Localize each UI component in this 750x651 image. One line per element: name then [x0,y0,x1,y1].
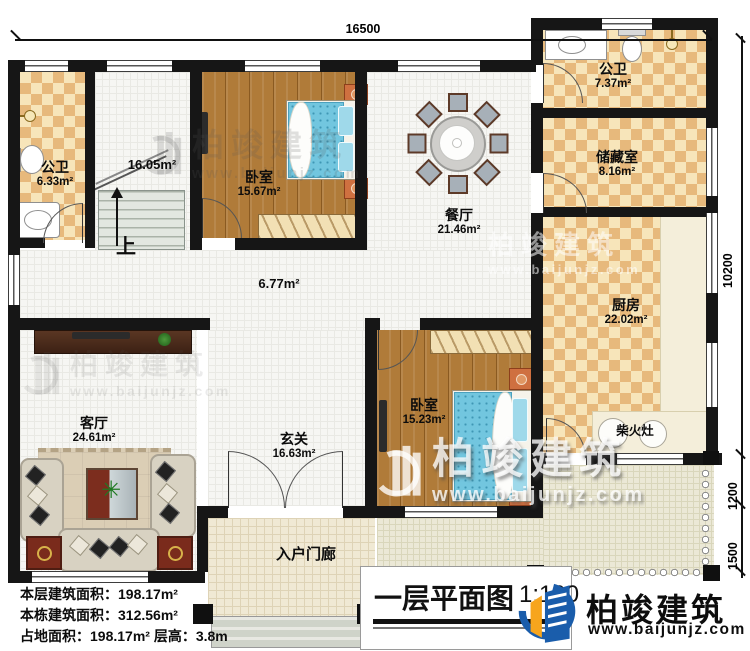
room-label-dining: 餐厅 21.46m² [428,208,490,237]
plant-icon: ✳ [98,478,124,504]
room-label-foyer: 玄关 16.63m² [262,432,326,461]
wall [497,506,543,518]
window [25,60,68,72]
bed-pillow [512,448,528,492]
floor-plan: ✳ [0,0,750,651]
porch-steps [211,616,365,648]
dimension-right-height: 10200 [721,228,735,288]
wardrobe [430,330,533,354]
end-table [26,536,62,570]
window [602,18,652,30]
room-label-storage: 储藏室 8.16m² [580,150,654,179]
wall [420,318,543,330]
brand-logo-icon [510,580,584,646]
window [405,506,497,518]
room-label-living: 客厅 24.61m² [62,416,126,445]
drawing-title: 一层平面图 [374,577,514,617]
dimension-right-seg2: 1500 [726,526,740,570]
stairs-up-label: 上 [110,236,142,259]
dimension-top-width: 16500 [318,22,408,36]
bed-pillow [338,142,354,172]
wall [343,506,405,518]
window [398,60,480,72]
dimension-line-top [15,39,712,41]
dining-table-center [452,138,462,148]
wall [190,60,202,250]
tv-icon [379,400,387,452]
up-arrow-head-icon [111,187,123,198]
room-label-porch: 入户门廊 [262,546,350,563]
room-label-bath1: 公卫 6.33m² [25,160,85,189]
dimension-line-right [741,36,743,578]
dimension-right-seg1: 1200 [726,466,740,510]
wall [365,318,377,506]
window [107,60,172,72]
bed-pillow [338,106,354,136]
porch-floor [208,518,375,618]
room-label-hallway: 6.77m² [248,277,310,292]
brand-url: www.baijunjz.com [588,621,746,639]
window [32,571,148,583]
balustrade-columns [700,468,711,567]
patio-floor [543,465,714,575]
wall [8,238,45,248]
dining-chair [448,93,468,112]
window [706,128,718,196]
window [8,255,20,305]
plant-icon [158,333,171,346]
bed-pillow [512,398,528,442]
wall [531,30,543,65]
wall [586,453,617,465]
room-label-kitchen: 厨房 22.02m² [594,298,658,327]
window [706,213,718,293]
window [245,60,320,72]
dining-chair [448,175,468,194]
wall [531,453,546,465]
tv-icon [72,332,130,339]
stove-label: 柴火灶 [592,424,678,438]
wall [543,108,706,118]
room-label-bath2: 公卫 7.37m² [582,62,644,91]
room-label-bedroom2: 卧室 15.23m² [392,398,456,427]
stats-line1: 本层建筑面积：198.17m² [20,584,228,605]
bed-sheet [288,102,312,178]
nightstand [509,368,533,390]
room-label-stair-hall: 16.05m² [120,158,184,173]
wall [197,506,208,572]
end-table [157,536,193,570]
corner-pillar [703,451,719,465]
dining-chair [408,134,427,154]
window [617,453,683,465]
window [706,343,718,407]
patio-pillar [703,565,720,581]
building-stats: 本层建筑面积：198.17m² 本栋建筑面积：312.56m² 占地面积：198… [20,584,228,647]
wall [8,318,210,330]
wardrobe [258,214,367,240]
dining-chair [490,134,509,154]
wall [531,103,543,173]
wall [355,60,367,250]
stats-line2: 本栋建筑面积：312.56m² [20,605,228,626]
stats-line3: 占地面积：198.17m² 层高：3.8m [20,626,228,647]
room-label-bedroom1: 卧室 15.67m² [227,170,291,199]
wall [235,238,367,250]
wall [85,60,95,248]
shower-head-icon [24,110,36,122]
